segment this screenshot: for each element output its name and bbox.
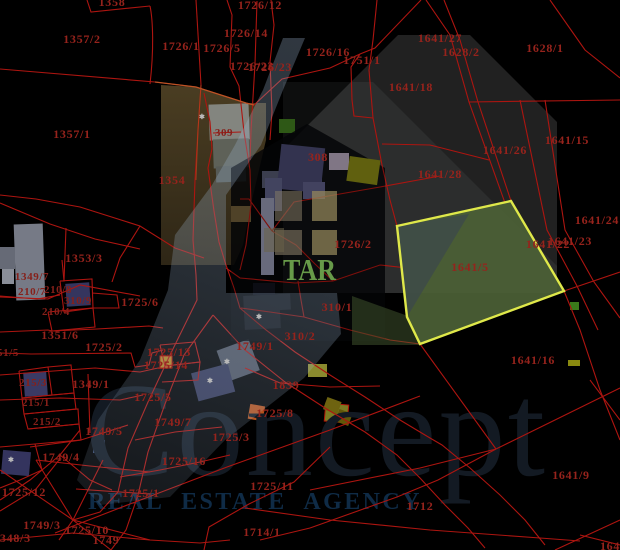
svg-text:1357/1: 1357/1 [53, 127, 91, 141]
svg-text:1725/6: 1725/6 [121, 295, 159, 309]
svg-text:1726/12: 1726/12 [238, 0, 282, 12]
svg-text:210/7: 210/7 [18, 286, 46, 298]
svg-text:1725/16: 1725/16 [162, 454, 206, 468]
svg-text:1749/5: 1749/5 [85, 424, 123, 438]
svg-text:1641/5: 1641/5 [451, 260, 489, 274]
svg-text:1725/2: 1725/2 [85, 340, 123, 354]
svg-text:1358: 1358 [99, 0, 126, 9]
svg-text:✱: ✱ [207, 377, 213, 385]
svg-text:✱: ✱ [224, 358, 230, 366]
svg-text:1725/8: 1725/8 [256, 406, 294, 420]
svg-text:1726/5: 1726/5 [203, 41, 241, 55]
svg-text:1712: 1712 [407, 499, 434, 513]
svg-text:1641/27: 1641/27 [418, 31, 462, 45]
svg-text:1714/1: 1714/1 [243, 525, 281, 539]
svg-text:215/3: 215/3 [19, 377, 47, 389]
svg-text:1641/15: 1641/15 [545, 133, 589, 147]
svg-text:1349/1: 1349/1 [72, 377, 110, 391]
svg-text:1839: 1839 [273, 378, 300, 392]
svg-text:1725/1: 1725/1 [122, 486, 160, 500]
svg-text:1357/2: 1357/2 [63, 32, 101, 46]
svg-text:51/5: 51/5 [0, 347, 19, 359]
svg-text:310/1: 310/1 [322, 300, 353, 314]
svg-text:1353/3: 1353/3 [65, 251, 103, 265]
svg-text:1749/3: 1749/3 [23, 518, 61, 532]
svg-text:✱: ✱ [256, 313, 262, 321]
svg-text:1749: 1749 [93, 533, 120, 547]
svg-text:308: 308 [308, 150, 328, 164]
svg-text:1641/26: 1641/26 [483, 143, 527, 157]
svg-text:1725/14: 1725/14 [144, 358, 188, 372]
svg-text:1725/11: 1725/11 [250, 479, 294, 493]
svg-text:1726/2: 1726/2 [334, 237, 372, 251]
svg-text:1749/7: 1749/7 [154, 415, 192, 429]
svg-text:1725/3: 1725/3 [212, 430, 250, 444]
svg-text:215/1: 215/1 [22, 397, 50, 409]
svg-text:309: 309 [215, 127, 233, 139]
svg-text:1628/2: 1628/2 [442, 45, 480, 59]
svg-text:1351/6: 1351/6 [41, 328, 79, 342]
svg-text:1749/4: 1749/4 [42, 450, 80, 464]
svg-text:1725/12: 1725/12 [2, 485, 46, 499]
svg-text:1726/14: 1726/14 [224, 26, 268, 40]
svg-text:215/2: 215/2 [33, 416, 61, 428]
svg-text:310/2: 310/2 [285, 329, 316, 343]
svg-text:1628/1: 1628/1 [526, 41, 564, 55]
svg-text:1641/9: 1641/9 [552, 468, 590, 482]
svg-text:1725/5: 1725/5 [134, 390, 172, 404]
svg-text:1354: 1354 [159, 173, 186, 187]
svg-text:164: 164 [600, 539, 620, 550]
svg-text:✱: ✱ [8, 456, 14, 464]
svg-text:1641/24: 1641/24 [575, 213, 619, 227]
svg-text:1349/7: 1349/7 [15, 271, 49, 283]
svg-text:1641/16: 1641/16 [511, 353, 555, 367]
svg-text:1726/1: 1726/1 [162, 39, 200, 53]
svg-text:TAR: TAR [283, 252, 337, 287]
svg-text:1641/28: 1641/28 [418, 167, 462, 181]
svg-text:1751/1: 1751/1 [343, 53, 381, 67]
svg-text:✱: ✱ [199, 113, 205, 121]
svg-text:1348/3: 1348/3 [0, 531, 31, 545]
svg-text:1726/23: 1726/23 [248, 60, 292, 74]
svg-text:1749/1: 1749/1 [236, 339, 274, 353]
svg-text:1641/23: 1641/23 [548, 234, 592, 248]
svg-text:1725/13: 1725/13 [147, 345, 191, 359]
svg-text:1641/18: 1641/18 [389, 80, 433, 94]
svg-text:210/4: 210/4 [42, 306, 70, 318]
